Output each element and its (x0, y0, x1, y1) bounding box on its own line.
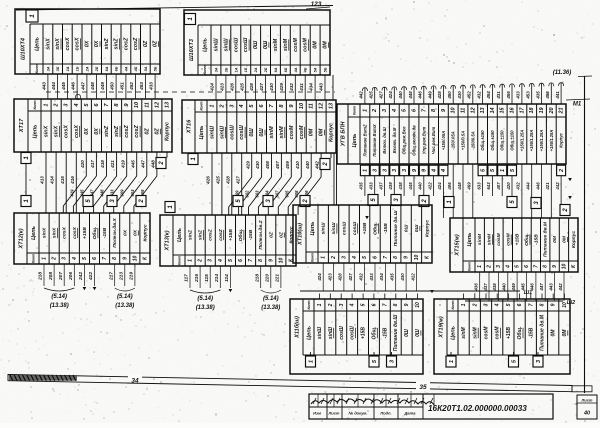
svg-text:1: 1 (321, 256, 327, 259)
svg-text:0Z: 0Z (153, 40, 159, 47)
svg-text:424: 424 (210, 83, 215, 92)
svg-text:4Б: 4Б (304, 67, 308, 73)
svg-text:Упр.реж.Вит: Упр.реж.Вит (421, 127, 426, 155)
svg-text:4: 4 (431, 169, 437, 173)
svg-text:+15В: +15В (361, 327, 367, 339)
svg-text:34: 34 (131, 378, 139, 385)
svg-text:2: 2 (331, 256, 337, 260)
svg-text:Включ. дв.Ш: Включ. дв.Ш (382, 126, 387, 153)
svg-text:2: 2 (323, 162, 329, 167)
svg-text:(13.38): (13.38) (50, 303, 69, 309)
svg-text:(5.14): (5.14) (117, 294, 133, 300)
svg-text:(13.38): (13.38) (261, 305, 280, 311)
svg-text:452: 452 (129, 82, 134, 91)
svg-text:442: 442 (315, 161, 320, 170)
svg-text:ХТ19(м): ХТ19(м) (438, 316, 444, 338)
svg-text:455: 455 (545, 91, 550, 100)
svg-text:242: 242 (78, 272, 84, 281)
svg-text:605: 605 (284, 190, 289, 198)
svg-text:0X: 0X (94, 128, 100, 135)
svg-text:633: 633 (476, 182, 481, 190)
svg-text:4Б: 4Б (134, 66, 138, 72)
svg-text:0Ш: 0Ш (415, 329, 421, 337)
svg-text:421: 421 (545, 182, 550, 191)
svg-text:Лист: Лист (328, 411, 340, 416)
svg-text:1: 1 (210, 104, 216, 107)
svg-text:sinМ: sinМ (487, 233, 493, 245)
svg-text:7: 7 (248, 259, 254, 262)
svg-text:217: 217 (108, 272, 114, 281)
svg-text:+150/1.25А: +150/1.25А (539, 130, 544, 152)
svg-text:Цепь: Цепь (34, 37, 40, 51)
svg-text:sinШ: sinШ (219, 125, 225, 139)
svg-text:6: 6 (517, 303, 523, 306)
svg-text:1Б: 1Б (76, 66, 80, 71)
svg-text:cosZ: cosZ (133, 37, 139, 50)
svg-text:14: 14 (490, 108, 496, 114)
svg-text:0Ш: 0Ш (253, 40, 259, 49)
svg-text:454: 454 (486, 91, 491, 100)
svg-text:ХТ12(к): ХТ12(к) (18, 228, 24, 249)
svg-text:16К20Т1.02.000000.00033: 16К20Т1.02.000000.00033 (428, 404, 527, 413)
svg-text:442: 442 (555, 182, 560, 191)
svg-text:-15В: -15В (102, 227, 108, 238)
svg-text:ХТ16: ХТ16 (186, 119, 192, 134)
svg-text:Корпус: Корпус (165, 122, 171, 141)
svg-text:Ш10ХТ3: Ш10ХТ3 (189, 38, 195, 61)
svg-text:5: 5 (82, 257, 88, 260)
svg-text:447: 447 (140, 160, 145, 169)
svg-text:11: 11 (309, 103, 315, 109)
svg-text:216: 216 (194, 274, 200, 283)
svg-text:cosX: cosX (74, 125, 80, 138)
svg-text:sinZ: sinZ (104, 125, 110, 137)
svg-text:cosX: cosX (62, 226, 68, 238)
svg-text:0Z: 0Z (268, 231, 274, 238)
svg-text:12: 12 (319, 102, 325, 109)
svg-text:3: 3 (484, 303, 490, 306)
svg-text:2: 2 (472, 303, 478, 307)
svg-text:-15В: -15В (382, 327, 388, 338)
svg-text:2: 2 (487, 265, 493, 269)
svg-text:0М: 0М (313, 41, 319, 49)
svg-text:Питание дв.М: Питание дв.М (540, 314, 546, 351)
svg-text:cosШ: cosШ (350, 326, 356, 340)
svg-text:Конт: Конт (310, 253, 314, 262)
svg-text:sinШ: sinШ (214, 38, 220, 52)
svg-text:3: 3 (496, 265, 502, 268)
svg-text:417: 417 (90, 160, 95, 169)
svg-text:cosX: cosX (64, 125, 70, 138)
svg-text:433: 433 (369, 273, 374, 282)
svg-text:8: 8 (112, 257, 118, 260)
svg-text:Питание ВитX: Питание ВитX (372, 124, 377, 157)
svg-text:cosШ: cosШ (243, 37, 249, 52)
svg-text:2: 2 (159, 161, 165, 166)
svg-text:Цепь: Цепь (450, 326, 456, 340)
svg-text:438: 438 (398, 182, 403, 191)
svg-text:17: 17 (519, 107, 525, 114)
svg-text:(5.14): (5.14) (51, 294, 67, 300)
svg-text:sinZ: sinZ (198, 229, 204, 240)
svg-text:608: 608 (294, 190, 299, 198)
svg-text:2: 2 (559, 169, 565, 173)
svg-text:cosМ: cosМ (299, 125, 305, 139)
svg-text:443: 443 (319, 83, 324, 92)
svg-text:413: 413 (40, 176, 45, 185)
svg-text:+150/1.25А: +150/1.25А (529, 130, 534, 152)
svg-text:448: 448 (90, 82, 95, 91)
svg-text:425: 425 (216, 176, 221, 185)
svg-text:6: 6 (373, 256, 379, 259)
svg-text:442: 442 (558, 283, 563, 292)
svg-text:1: 1 (44, 103, 50, 106)
svg-text:1: 1 (188, 259, 194, 262)
svg-text:sinШ: sinШ (223, 38, 229, 52)
svg-text:406: 406 (447, 182, 452, 191)
svg-text:3: 3 (392, 169, 398, 172)
svg-text:8: 8 (258, 259, 264, 262)
svg-text:Конт: Конт (199, 101, 203, 110)
svg-text:432: 432 (516, 182, 521, 191)
svg-text:0X: 0X (94, 40, 100, 47)
svg-text:0Ш: 0Ш (249, 128, 255, 137)
svg-text:453: 453 (526, 91, 531, 100)
svg-text:4: 4 (441, 169, 447, 173)
svg-text:Общ.реж.Вкл: Общ.реж.Вкл (402, 126, 407, 154)
svg-text:2: 2 (328, 303, 334, 307)
svg-text:0Z: 0Z (278, 231, 284, 238)
svg-text:440: 440 (418, 182, 423, 191)
svg-text:429: 429 (279, 83, 284, 92)
svg-text:4А: 4А (294, 67, 298, 73)
svg-text:2Б: 2Б (264, 67, 268, 73)
svg-text:Общ.±150: Общ.±150 (480, 130, 485, 151)
svg-text:2Б: 2Б (95, 66, 99, 72)
svg-text:Питание дв.М: Питание дв.М (543, 221, 549, 257)
svg-text:424: 424 (437, 182, 442, 191)
svg-text:6: 6 (238, 259, 244, 262)
svg-text:Цепь: Цепь (31, 226, 37, 240)
svg-text:4: 4 (350, 303, 356, 307)
svg-text:423: 423 (327, 273, 332, 282)
svg-text:sinМ: sinМ (477, 233, 483, 245)
svg-text:35: 35 (419, 384, 427, 391)
svg-text:Ш10ХТ4: Ш10ХТ4 (20, 37, 26, 60)
svg-text:435: 435 (359, 182, 364, 191)
svg-text:5: 5 (361, 303, 367, 306)
svg-text:+150/1.25А: +150/1.25А (519, 130, 524, 152)
svg-text:412: 412 (410, 273, 415, 282)
svg-text:427: 427 (378, 91, 383, 100)
svg-text:cosМ: cosМ (505, 232, 511, 245)
svg-text:Корпус: Корпус (571, 231, 577, 249)
svg-text:+150/1.25А: +150/1.25А (549, 130, 554, 152)
svg-text:sinМ: sinМ (269, 126, 275, 139)
svg-text:449: 449 (511, 283, 516, 292)
svg-text:Цепь: Цепь (32, 125, 38, 139)
svg-text:0Ш: 0Ш (404, 329, 410, 337)
svg-text:425: 425 (369, 91, 374, 100)
svg-text:0М: 0М (323, 41, 329, 49)
svg-text:448: 448 (457, 182, 462, 191)
svg-text:9: 9 (122, 257, 128, 260)
svg-text:8: 8 (393, 256, 399, 259)
svg-text:430: 430 (269, 83, 274, 92)
svg-text:5Б: 5Б (324, 67, 328, 72)
svg-text:№ докум.: № докум. (349, 411, 368, 416)
svg-text:cosX: cosX (75, 37, 81, 50)
svg-text:Полезн.дв.X: Полезн.дв.X (112, 217, 118, 247)
svg-text:Конт: Конт (203, 65, 207, 74)
svg-text:219: 219 (129, 272, 135, 281)
svg-text:6А: 6А (105, 66, 109, 71)
svg-text:428: 428 (225, 176, 230, 185)
svg-text:9: 9 (268, 259, 274, 262)
svg-text:1: 1 (363, 169, 369, 172)
svg-text:13: 13 (329, 102, 335, 109)
svg-text:1: 1 (449, 360, 455, 363)
svg-text:10: 10 (134, 101, 140, 108)
svg-text:Питание ВитZ: Питание ВитZ (362, 124, 367, 157)
svg-text:643: 643 (486, 182, 491, 190)
svg-text:428: 428 (437, 91, 442, 100)
svg-text:cosZ: cosZ (124, 125, 130, 138)
svg-text:453: 453 (139, 82, 144, 91)
svg-text:(5.14): (5.14) (197, 296, 213, 302)
svg-text:cosZ: cosZ (208, 228, 214, 240)
svg-text:18: 18 (529, 108, 535, 114)
svg-text:1А: 1А (66, 66, 70, 71)
svg-text:424: 424 (317, 273, 322, 282)
svg-text:1: 1 (477, 265, 483, 268)
svg-text:cosZ: cosZ (123, 37, 129, 50)
svg-text:117: 117 (184, 274, 190, 282)
svg-text:445: 445 (61, 82, 66, 91)
svg-text:3: 3 (341, 256, 347, 259)
svg-text:448: 448 (100, 189, 105, 198)
svg-text:cosZ: cosZ (134, 125, 140, 138)
svg-text:sinX: sinX (42, 227, 48, 238)
svg-text:Цепь: Цепь (467, 233, 473, 247)
svg-text:-15В: -15В (248, 229, 254, 240)
svg-text:Лист: Лист (581, 398, 593, 403)
svg-text:7: 7 (528, 303, 534, 306)
svg-text:446: 446 (530, 283, 535, 292)
svg-text:13: 13 (165, 101, 171, 108)
svg-text:Цепь: Цепь (352, 134, 358, 148)
svg-text:1А: 1А (234, 67, 238, 72)
svg-text:0М: 0М (562, 329, 568, 337)
svg-text:9: 9 (404, 256, 410, 259)
svg-text:4: 4 (218, 259, 224, 263)
svg-text:5А: 5А (144, 66, 148, 71)
svg-text:0М: 0М (551, 329, 557, 337)
svg-text:21: 21 (559, 108, 565, 115)
svg-text:0М: 0М (552, 235, 558, 243)
svg-text:-15В: -15В (383, 223, 389, 234)
svg-text:(13.38): (13.38) (115, 303, 134, 309)
svg-text:cosШ: cosШ (339, 326, 345, 340)
svg-text:443: 443 (548, 283, 553, 292)
svg-text:sinШ: sinШ (331, 222, 337, 234)
svg-text:Дата: Дата (404, 411, 417, 416)
svg-text:0Ш: 0Ш (414, 225, 420, 233)
svg-text:469: 469 (467, 182, 472, 191)
svg-text:6: 6 (371, 303, 377, 306)
svg-text:0М: 0М (319, 128, 325, 136)
svg-text:Общ.включ.дв: Общ.включ.дв (412, 125, 417, 156)
svg-text:10: 10 (562, 264, 568, 270)
svg-text:5: 5 (515, 265, 521, 268)
svg-text:218: 218 (254, 274, 260, 283)
svg-text:444: 444 (526, 182, 531, 191)
svg-text:Конт: Конт (33, 100, 37, 109)
svg-text:441: 441 (555, 91, 560, 100)
svg-text:16: 16 (510, 107, 516, 114)
svg-text:6: 6 (524, 265, 530, 268)
svg-text:Корпус: Корпус (424, 220, 430, 238)
svg-text:Общ.: Общ. (516, 326, 523, 339)
svg-text:sinМ: sinМ (472, 326, 478, 338)
svg-text:430: 430 (255, 161, 260, 170)
svg-text:432: 432 (358, 273, 363, 282)
svg-text:Полезн.дв.Z: Полезн.дв.Z (258, 219, 264, 249)
svg-text:450: 450 (110, 82, 115, 91)
svg-text:420: 420 (80, 160, 85, 169)
svg-text:1: 1 (317, 303, 323, 306)
svg-text:ХТ15(м): ХТ15(м) (454, 234, 460, 256)
svg-text:cosМ: cosМ (484, 326, 490, 340)
svg-text:cosШ: cosШ (229, 125, 235, 140)
svg-text:218: 218 (38, 272, 44, 281)
svg-text:20: 20 (549, 108, 555, 115)
svg-text:445: 445 (520, 283, 525, 292)
svg-text:7: 7 (383, 256, 389, 259)
svg-text:Общ.: Общ. (523, 233, 530, 246)
svg-text:452: 452 (467, 91, 472, 100)
svg-text:609: 609 (120, 189, 125, 197)
svg-text:-15В: -15В (533, 234, 539, 245)
svg-text:sinМ: sinМ (273, 38, 279, 51)
svg-text:2: 2 (422, 199, 428, 204)
svg-text:7: 7 (533, 265, 539, 268)
svg-text:208: 208 (48, 272, 54, 281)
svg-text:cosX: cosX (65, 37, 71, 50)
svg-text:Ш2: Ш2 (567, 300, 575, 306)
svg-text:2А: 2А (85, 66, 89, 72)
svg-text:Конт: Конт (467, 262, 471, 271)
svg-text:sinШ: sinШ (328, 327, 334, 339)
svg-text:3А: 3А (46, 66, 50, 71)
svg-text:sinZ: sinZ (114, 38, 120, 50)
svg-text:3: 3 (402, 169, 408, 172)
svg-text:Х11б(ш): Х11б(ш) (293, 316, 300, 339)
svg-text:0Х: 0Х (132, 229, 138, 236)
svg-text:+150/.05А: +150/.05А (441, 131, 446, 150)
svg-text:456: 456 (506, 91, 511, 100)
svg-text:9: 9 (404, 303, 410, 306)
svg-text:3Б: 3Б (56, 66, 60, 71)
svg-text:123: 123 (311, 1, 322, 8)
svg-text:0Х: 0Х (122, 229, 128, 236)
svg-text:8: 8 (393, 303, 399, 306)
svg-text:220: 220 (265, 274, 271, 283)
svg-text:1: 1 (29, 14, 36, 18)
svg-text:11: 11 (144, 102, 150, 108)
svg-text:9: 9 (552, 265, 558, 268)
svg-text:408: 408 (265, 161, 270, 170)
svg-text:Общ.: Общ. (370, 326, 377, 339)
svg-text:0Ш: 0Ш (263, 40, 269, 49)
svg-text:3: 3 (373, 169, 379, 172)
svg-text:4: 4 (352, 256, 358, 260)
svg-text:sinX: sinX (44, 125, 50, 137)
svg-text:448: 448 (151, 160, 156, 169)
svg-text:3: 3 (208, 259, 214, 262)
svg-text:9: 9 (441, 109, 447, 112)
svg-text:0Z: 0Z (143, 40, 149, 47)
svg-text:40: 40 (583, 411, 590, 417)
svg-text:Общ.±150: Общ.±150 (500, 130, 505, 151)
svg-text:420: 420 (506, 182, 511, 191)
svg-text:414: 414 (50, 176, 55, 185)
svg-text:416: 416 (70, 176, 75, 185)
svg-text:114: 114 (224, 274, 230, 282)
svg-text:407: 407 (275, 161, 280, 170)
svg-text:0М: 0М (309, 128, 315, 136)
svg-text:432: 432 (476, 91, 481, 100)
svg-text:1: 1 (461, 303, 467, 306)
svg-text:cosШ: cosШ (341, 222, 347, 235)
svg-text:445: 445 (408, 182, 413, 191)
svg-text:Чис.реж.Вит: Чис.реж.Вит (431, 127, 436, 155)
svg-text:433: 433 (369, 182, 374, 191)
svg-text:447: 447 (539, 283, 544, 292)
svg-text:422: 422 (427, 182, 432, 191)
svg-text:4: 4 (72, 257, 78, 261)
svg-text:Изм: Изм (313, 411, 321, 416)
svg-text:Конт: Конт (451, 300, 455, 309)
svg-text:1: 1 (308, 360, 314, 363)
svg-text:+15В: +15В (228, 229, 234, 241)
svg-text:2: 2 (563, 208, 569, 213)
svg-text:2: 2 (372, 109, 378, 113)
svg-text:1: 1 (42, 257, 48, 260)
svg-text:8: 8 (540, 303, 546, 306)
svg-text:3: 3 (339, 303, 345, 306)
svg-text:sinX: sinX (54, 125, 60, 137)
svg-text:607: 607 (274, 190, 279, 198)
svg-text:10: 10 (299, 102, 305, 109)
svg-text:602: 602 (245, 190, 250, 198)
svg-text:3: 3 (382, 109, 388, 112)
svg-text:425: 425 (239, 83, 244, 92)
svg-text:419: 419 (69, 189, 74, 198)
svg-text:442: 442 (359, 91, 364, 100)
svg-text:Конт: Конт (31, 254, 35, 263)
svg-text:ХТ10(ш): ХТ10(ш) (297, 223, 303, 246)
svg-text:(5.14): (5.14) (263, 296, 279, 302)
svg-text:5: 5 (506, 303, 512, 306)
svg-text:5: 5 (362, 256, 368, 259)
svg-text:430: 430 (400, 273, 405, 282)
svg-text:3Б: 3Б (224, 67, 228, 72)
svg-text:8: 8 (431, 109, 437, 112)
svg-text:430: 430 (457, 91, 462, 100)
svg-text:427: 427 (348, 273, 353, 282)
svg-text:433: 433 (149, 82, 154, 91)
